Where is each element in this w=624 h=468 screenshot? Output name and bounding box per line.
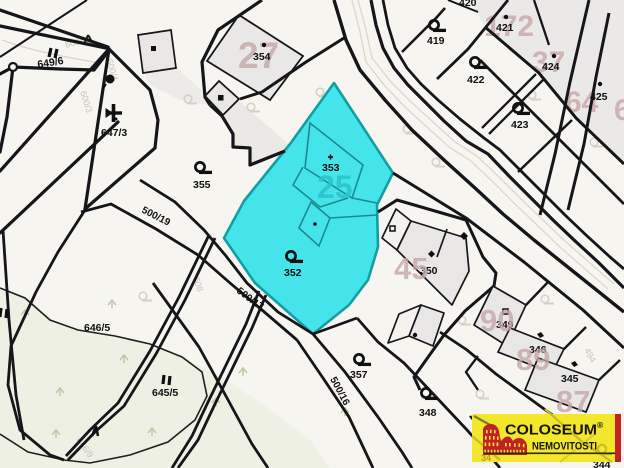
svg-text:423: 423 bbox=[511, 119, 529, 131]
svg-text:424: 424 bbox=[542, 61, 560, 73]
svg-text:®: ® bbox=[597, 420, 604, 430]
svg-text:348: 348 bbox=[419, 407, 437, 419]
svg-text:354: 354 bbox=[253, 51, 271, 63]
svg-text:89: 89 bbox=[516, 342, 550, 377]
svg-text:87: 87 bbox=[556, 384, 590, 419]
svg-text:NEMOVITOSTI: NEMOVITOSTI bbox=[532, 441, 597, 453]
svg-text:646/5: 646/5 bbox=[84, 322, 110, 334]
svg-text:422: 422 bbox=[467, 74, 485, 86]
svg-text:25: 25 bbox=[317, 169, 353, 205]
svg-text:420: 420 bbox=[459, 0, 477, 9]
svg-text:COLOSEUM: COLOSEUM bbox=[505, 423, 597, 439]
svg-text:45: 45 bbox=[394, 251, 428, 286]
svg-text:90: 90 bbox=[480, 303, 514, 338]
svg-text:355: 355 bbox=[193, 179, 211, 191]
svg-text:353: 353 bbox=[322, 162, 340, 174]
svg-text:419: 419 bbox=[427, 35, 445, 47]
svg-text:645/5: 645/5 bbox=[152, 387, 178, 399]
svg-text:425: 425 bbox=[590, 91, 608, 103]
svg-text:421: 421 bbox=[496, 22, 514, 34]
svg-text:357: 357 bbox=[350, 369, 368, 381]
svg-text:6: 6 bbox=[614, 94, 624, 127]
svg-text:352: 352 bbox=[284, 267, 302, 279]
svg-text:647/3: 647/3 bbox=[101, 127, 127, 139]
